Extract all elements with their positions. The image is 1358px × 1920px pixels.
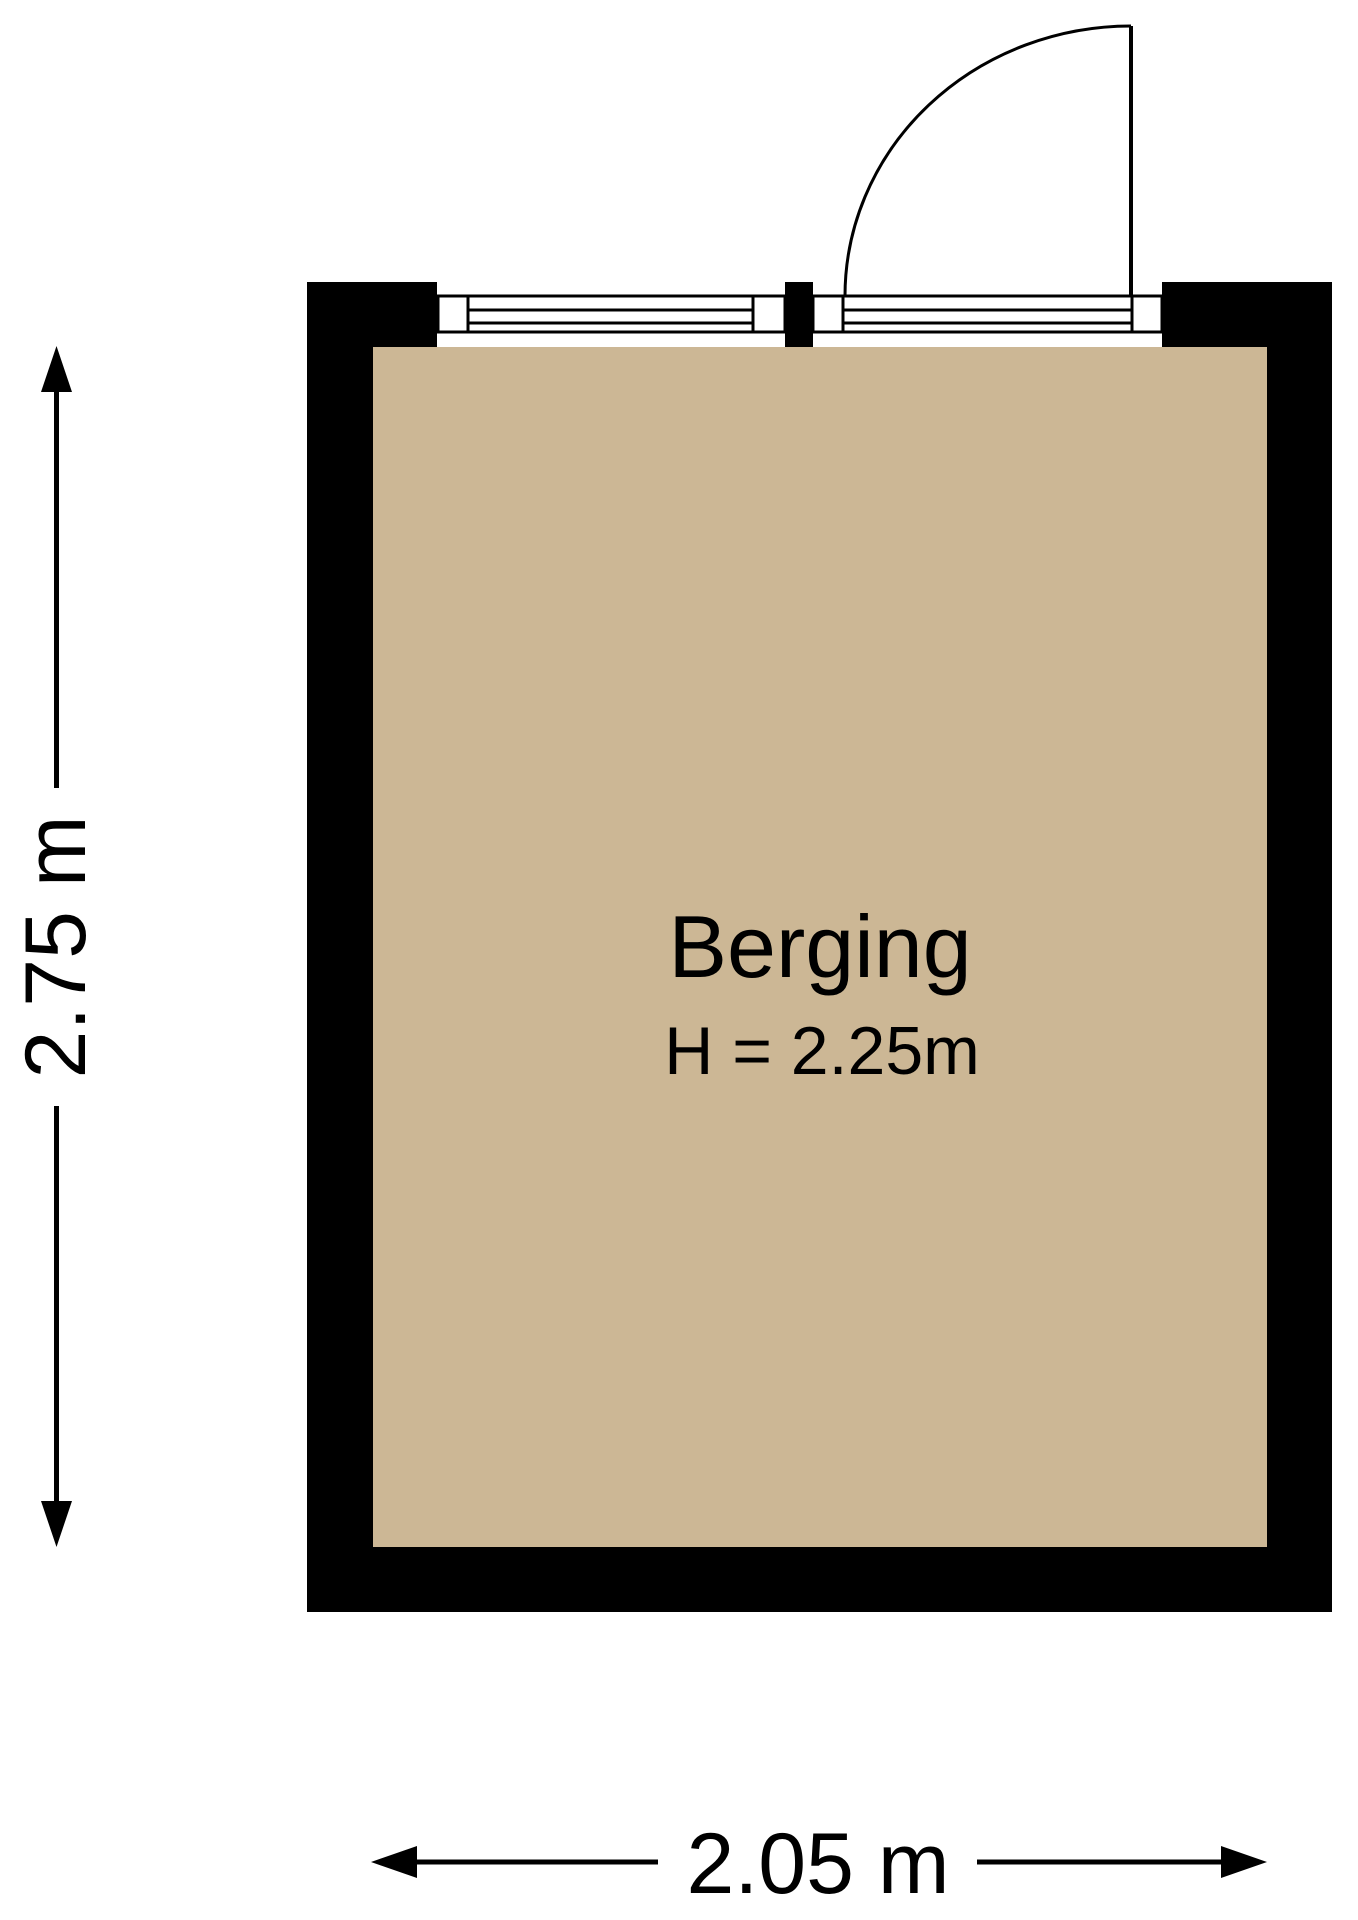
door-icon (845, 26, 1131, 296)
horizontal-dimension-label: 2.05 m (687, 1821, 950, 1907)
floorplan-canvas: Berging H = 2.25m 2.75 m 2.05 m (0, 0, 1358, 1920)
door-swing-arc (845, 26, 1131, 296)
vertical-dimension-label: 2.75 m (13, 816, 99, 1079)
arrowhead-right-icon (1221, 1846, 1267, 1878)
arrowhead-down-icon (41, 1501, 72, 1547)
window-right-icon (813, 296, 1162, 332)
arrowhead-up-icon (41, 346, 72, 392)
room-name-label: Berging (668, 903, 971, 991)
window-left-icon (438, 296, 785, 332)
room-height-label: H = 2.25m (664, 1017, 980, 1085)
window-mullion (785, 282, 813, 347)
arrowhead-left-icon (371, 1846, 417, 1878)
